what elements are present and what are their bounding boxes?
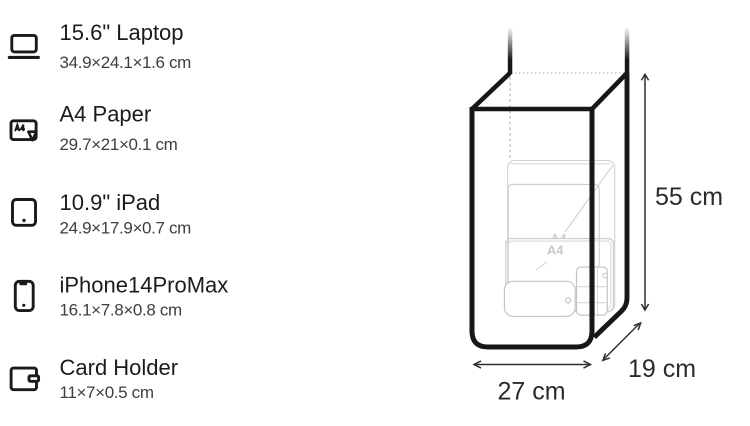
svg-text:24.9×17.9×0.7 cm: 24.9×17.9×0.7 cm <box>60 219 192 238</box>
svg-text:10.9" iPad: 10.9" iPad <box>60 190 161 215</box>
svg-text:Card Holder: Card Holder <box>60 355 179 380</box>
svg-text:A4: A4 <box>547 243 564 258</box>
svg-text:iPhone14ProMax: iPhone14ProMax <box>60 273 229 298</box>
svg-text:55 cm: 55 cm <box>655 183 723 211</box>
svg-text:11×7×0.5 cm: 11×7×0.5 cm <box>60 383 154 402</box>
svg-text:15.6" Laptop: 15.6" Laptop <box>60 20 184 45</box>
svg-text:29.7×21×0.1 cm: 29.7×21×0.1 cm <box>60 135 178 154</box>
svg-text:27 cm: 27 cm <box>498 378 566 406</box>
svg-text:16.1×7.8×0.8 cm: 16.1×7.8×0.8 cm <box>60 301 183 320</box>
svg-text:A4 Paper: A4 Paper <box>60 102 152 127</box>
svg-text:34.9×24.1×1.6 cm: 34.9×24.1×1.6 cm <box>60 53 192 72</box>
svg-text:19 cm: 19 cm <box>628 355 696 383</box>
